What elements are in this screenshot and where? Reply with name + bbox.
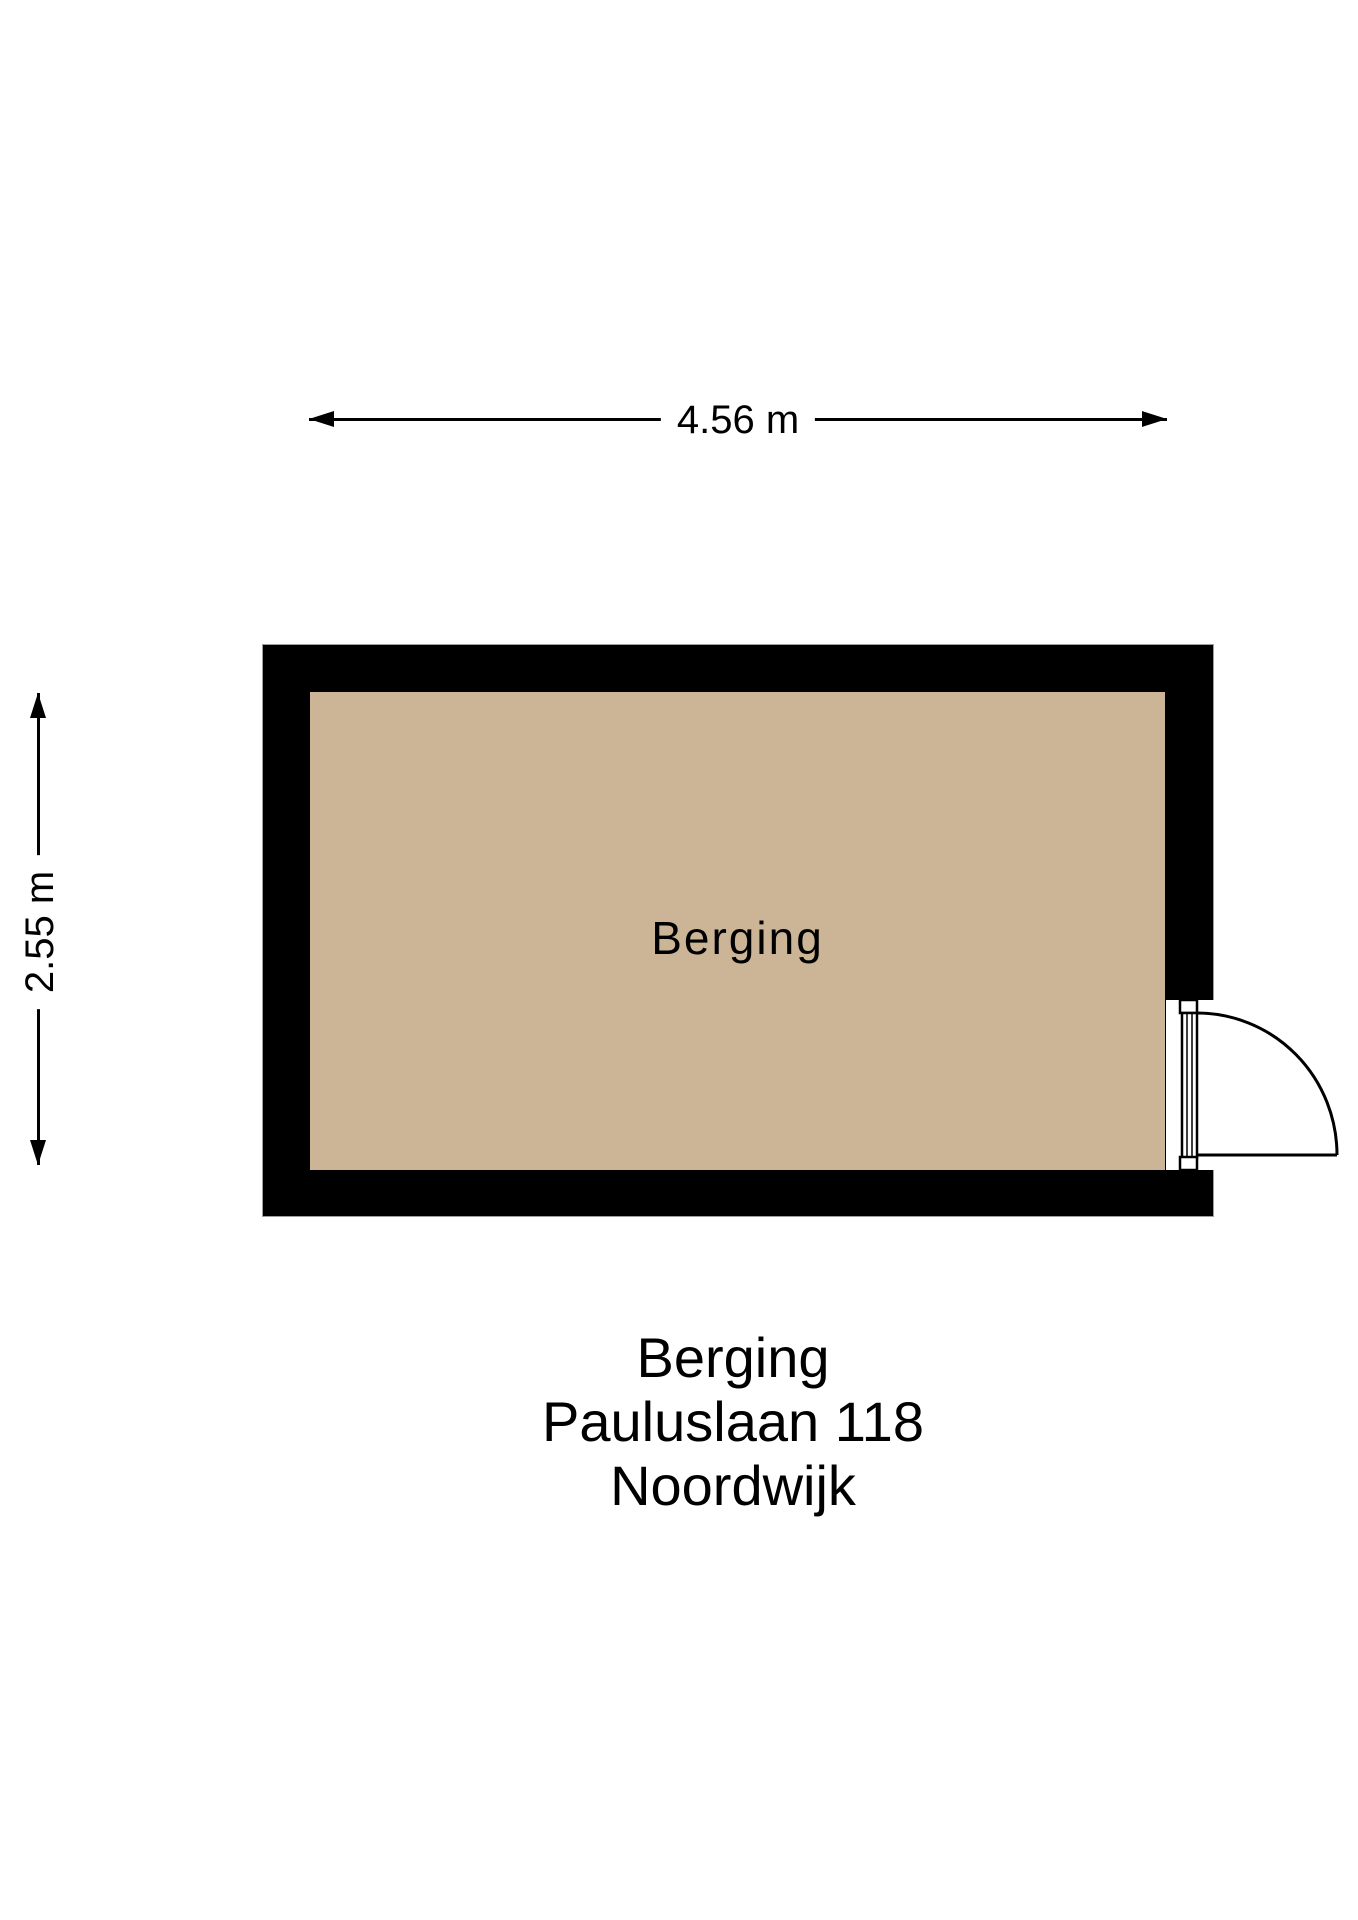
height-dimension-arrowhead-top xyxy=(30,693,46,718)
width-dimension-arrowhead-left xyxy=(309,411,334,427)
address-line-city: Noordwijk xyxy=(233,1454,1233,1518)
address-block: Berging Pauluslaan 118 Noordwijk xyxy=(233,1326,1233,1518)
width-dimension-label: 4.56 m xyxy=(661,398,815,442)
door xyxy=(1155,990,1355,1180)
door-swing-arc xyxy=(1197,1013,1337,1155)
width-dimension-arrowhead-right xyxy=(1142,411,1167,427)
room-label: Berging xyxy=(310,911,1165,965)
door-leaf xyxy=(1182,1013,1197,1158)
height-dimension-arrowhead-bottom xyxy=(30,1140,46,1165)
address-line-room: Berging xyxy=(233,1326,1233,1390)
address-line-street: Pauluslaan 118 xyxy=(233,1390,1233,1454)
height-dimension-label: 2.55 m xyxy=(18,855,62,1009)
door-frame-top xyxy=(1180,1000,1197,1013)
door-frame-bottom xyxy=(1180,1157,1197,1170)
floorplan-page: 4.56 m 2.55 m Berging Berging Pauluslaan… xyxy=(0,0,1358,1920)
